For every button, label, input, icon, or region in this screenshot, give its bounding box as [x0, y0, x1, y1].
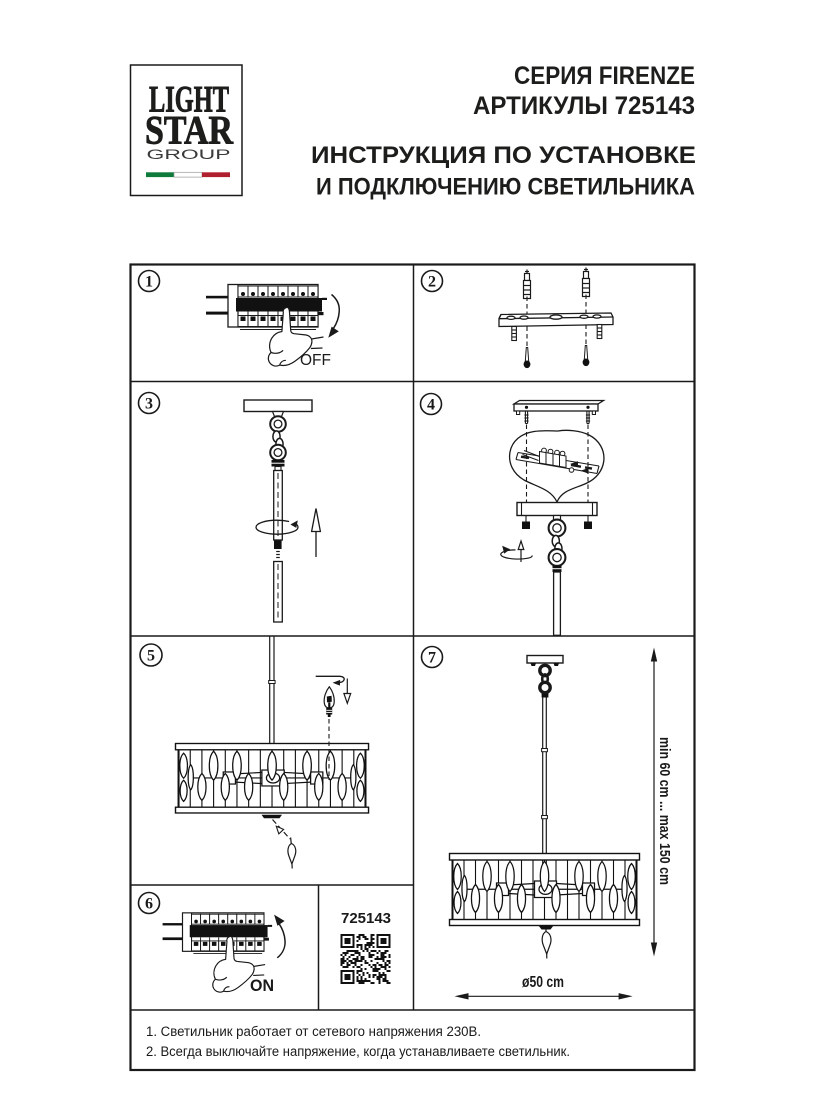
svg-text:725143: 725143 [341, 911, 391, 927]
svg-text:СЕРИЯ FIRENZE: СЕРИЯ FIRENZE [514, 62, 695, 90]
svg-text:6: 6 [145, 896, 153, 913]
svg-text:2. Всегда выключайте напряжени: 2. Всегда выключайте напряжение, когда у… [146, 1044, 570, 1060]
svg-text:2: 2 [428, 274, 436, 291]
svg-text:7: 7 [428, 650, 436, 667]
svg-text:GROUP: GROUP [147, 147, 231, 162]
svg-text:ø50 cm: ø50 cm [522, 974, 564, 991]
svg-text:И ПОДКЛЮЧЕНИЮ СВЕТИЛЬНИКА: И ПОДКЛЮЧЕНИЮ СВЕТИЛЬНИКА [316, 174, 695, 201]
svg-text:АРТИКУЛЫ 725143: АРТИКУЛЫ 725143 [473, 92, 695, 120]
svg-text:STAR: STAR [145, 108, 234, 153]
svg-text:1: 1 [145, 274, 153, 291]
svg-text:4: 4 [427, 397, 435, 414]
svg-text:5: 5 [147, 648, 155, 665]
svg-text:OFF: OFF [300, 352, 331, 369]
svg-text:ИНСТРУКЦИЯ ПО УСТАНОВКЕ: ИНСТРУКЦИЯ ПО УСТАНОВКЕ [311, 142, 696, 169]
svg-text:ON: ON [250, 977, 274, 995]
svg-text:1. Светильник работает от сете: 1. Светильник работает от сетевого напря… [146, 1024, 481, 1040]
svg-text:min 60 cm ... max 150 cm: min 60 cm ... max 150 cm [656, 737, 673, 885]
svg-text:3: 3 [145, 396, 153, 413]
